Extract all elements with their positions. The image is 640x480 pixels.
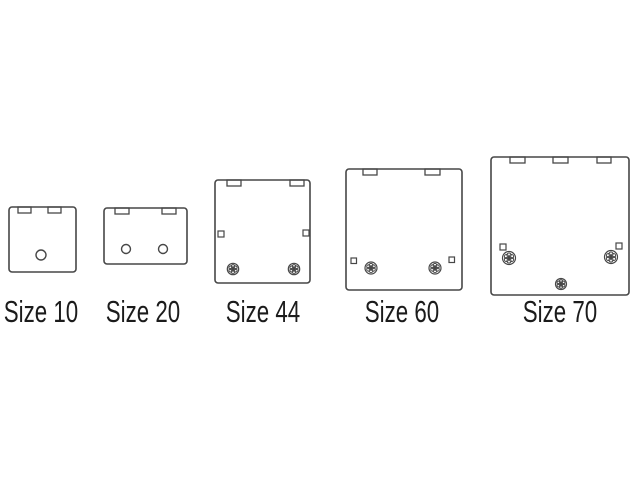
clip-slot — [303, 230, 309, 236]
enclosure-outline — [9, 207, 76, 272]
knockout-tab — [510, 157, 525, 163]
size-label-60: Size 60 — [365, 296, 439, 329]
size-label-44: Size 44 — [226, 296, 300, 329]
screw-head-icon — [605, 251, 618, 264]
knockout-tab — [115, 208, 129, 214]
size-label-20: Size 20 — [106, 296, 180, 329]
mounting-hole — [159, 245, 168, 254]
knockout-tab — [48, 207, 61, 213]
clip-slot — [500, 244, 506, 250]
clip-slot — [616, 243, 622, 249]
size-diagram — [0, 0, 640, 480]
screw-head-icon — [503, 252, 516, 265]
box-size-70 — [491, 157, 629, 295]
screw-head-icon — [365, 262, 377, 274]
size-label-10: Size 10 — [4, 296, 78, 329]
knockout-tab — [597, 157, 611, 163]
mounting-hole — [122, 245, 131, 254]
enclosure-outline — [104, 208, 187, 264]
knockout-tab — [363, 169, 377, 175]
clip-slot — [449, 257, 455, 263]
enclosure-outline — [491, 157, 629, 295]
screw-head-icon — [429, 262, 441, 274]
screw-head-icon — [556, 279, 567, 290]
box-size-44 — [215, 180, 310, 283]
knockout-tab — [425, 169, 440, 175]
enclosure-outline — [346, 169, 462, 290]
box-size-10 — [9, 207, 76, 272]
screw-head-icon — [227, 263, 238, 274]
knockout-tab — [227, 180, 241, 186]
knockout-tab — [290, 180, 304, 186]
knockout-tab — [162, 208, 176, 214]
knockout-tab — [18, 207, 31, 213]
product-size-comparison: Size 10 Size 20 Size 44 Size 60 Size 70 — [0, 0, 640, 480]
box-size-60 — [346, 169, 462, 290]
screw-head-icon — [288, 263, 299, 274]
size-label-70: Size 70 — [523, 296, 597, 329]
knockout-tab — [553, 157, 568, 163]
clip-slot — [218, 231, 224, 237]
mounting-hole — [36, 250, 46, 260]
box-size-20 — [104, 208, 187, 264]
clip-slot — [351, 258, 357, 264]
